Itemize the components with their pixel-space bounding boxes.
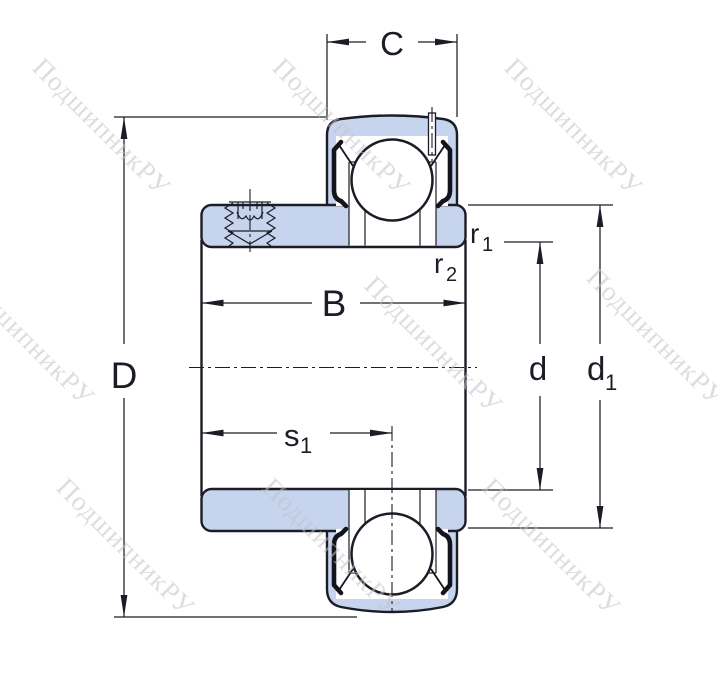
label-B: B [322, 283, 347, 324]
label-s1-base: s [284, 418, 300, 453]
label-d: d [529, 350, 547, 387]
ball-top [352, 140, 433, 221]
label-r1-sub: 1 [482, 234, 493, 256]
label-r2-base: r [434, 248, 443, 279]
bearing-cross-section-diagram: C D B s 1 r 1 r 2 d d 1 [0, 0, 718, 682]
label-D: D [111, 355, 138, 396]
label-r2-sub: 2 [446, 264, 457, 286]
label-d1-sub: 1 [605, 370, 617, 395]
label-s1-sub: 1 [300, 433, 312, 458]
bearing-drawing-canvas: C D B s 1 r 1 r 2 d d 1 ПодшипникРУ Подш… [0, 0, 718, 682]
label-d1-base: d [587, 350, 605, 387]
bearing-geometry [202, 113, 466, 612]
label-r1-base: r [470, 218, 479, 249]
label-C: C [380, 25, 404, 62]
